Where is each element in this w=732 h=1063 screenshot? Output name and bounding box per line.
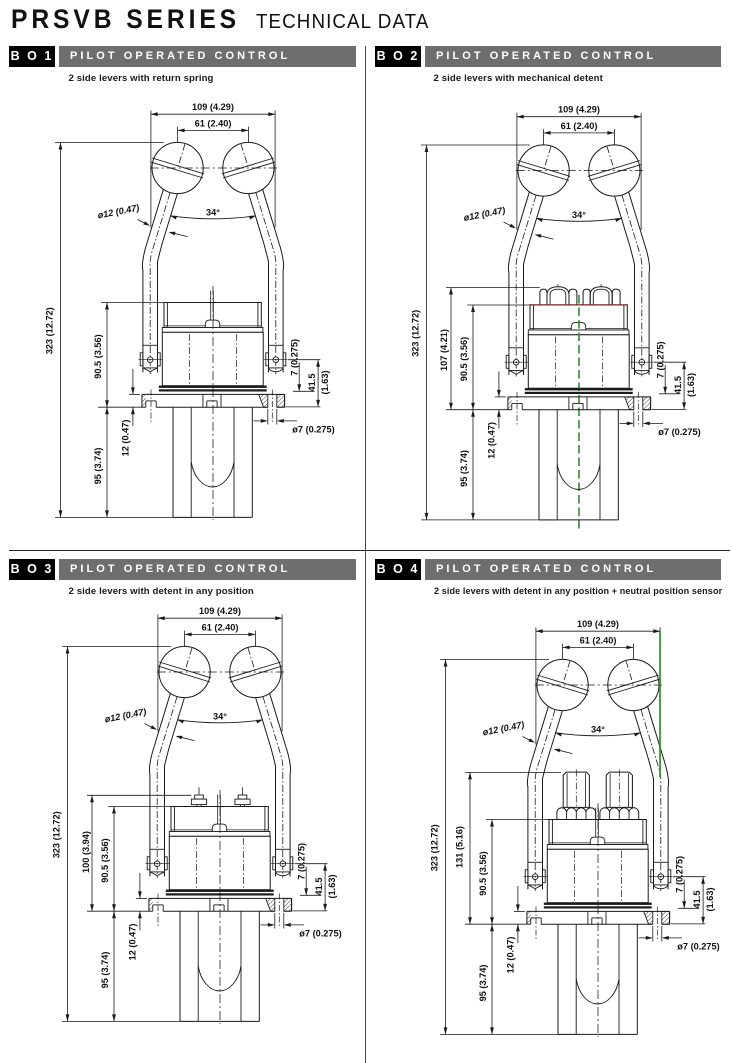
svg-text:12 (0.47): 12 (0.47) [120,420,130,457]
svg-text:95 (3.74): 95 (3.74) [93,448,103,485]
svg-text:61 (2.40): 61 (2.40) [195,119,232,129]
svg-text:323 (12.72): 323 (12.72) [52,811,62,858]
svg-text:109 (4.29): 109 (4.29) [199,606,241,616]
svg-text:41.5: 41.5 [673,376,683,394]
svg-text:95 (3.74): 95 (3.74) [459,450,469,487]
svg-text:34°: 34° [591,725,605,735]
svg-text:12 (0.47): 12 (0.47) [486,422,496,459]
svg-text:(1.63): (1.63) [686,373,696,397]
svg-text:ø12 (0.47): ø12 (0.47) [104,707,148,725]
svg-text:107 (4.21): 107 (4.21) [439,329,449,371]
svg-text:7 (0.275): 7 (0.275) [675,856,685,893]
svg-text:ø12 (0.47): ø12 (0.47) [97,203,141,221]
svg-text:ø12 (0.47): ø12 (0.47) [463,205,507,223]
svg-text:41.5: 41.5 [307,374,317,392]
svg-text:323 (12.72): 323 (12.72) [430,824,440,871]
svg-text:12 (0.47): 12 (0.47) [127,924,137,961]
svg-text:(1.63): (1.63) [327,874,337,898]
svg-text:7 (0.275): 7 (0.275) [290,339,300,376]
svg-text:90.5 (3.56): 90.5 (3.56) [459,337,469,381]
svg-text:34°: 34° [572,210,586,220]
svg-text:34°: 34° [213,712,227,722]
svg-text:7 (0.275): 7 (0.275) [297,843,307,880]
svg-text:90.5 (3.56): 90.5 (3.56) [93,334,103,378]
svg-text:(1.63): (1.63) [705,887,715,911]
svg-text:100 (3.94): 100 (3.94) [81,831,91,873]
svg-text:ø7 (0.275): ø7 (0.275) [292,425,334,435]
svg-text:41.5: 41.5 [314,878,324,896]
svg-text:323 (12.72): 323 (12.72) [411,310,421,357]
svg-text:61 (2.40): 61 (2.40) [580,636,617,646]
svg-text:95 (3.74): 95 (3.74) [478,965,488,1002]
svg-text:41.5: 41.5 [692,891,702,909]
svg-text:7 (0.275): 7 (0.275) [656,341,666,378]
svg-text:95 (3.74): 95 (3.74) [100,952,110,989]
svg-text:90.5 (3.56): 90.5 (3.56) [478,851,488,895]
svg-text:(1.63): (1.63) [320,370,330,394]
svg-text:61 (2.40): 61 (2.40) [202,623,239,633]
svg-text:131 (5.16): 131 (5.16) [455,826,465,868]
svg-text:90.5 (3.56): 90.5 (3.56) [100,838,110,882]
svg-text:ø7 (0.275): ø7 (0.275) [299,929,341,939]
svg-text:323 (12.72): 323 (12.72) [45,307,55,354]
svg-text:ø7 (0.275): ø7 (0.275) [658,427,700,437]
svg-text:ø12 (0.47): ø12 (0.47) [482,720,526,738]
svg-text:61 (2.40): 61 (2.40) [561,121,598,131]
svg-text:109 (4.29): 109 (4.29) [192,102,234,112]
svg-text:12 (0.47): 12 (0.47) [505,937,515,974]
svg-text:ø7 (0.275): ø7 (0.275) [677,942,719,952]
svg-text:109 (4.29): 109 (4.29) [558,105,600,115]
svg-text:34°: 34° [206,208,220,218]
svg-text:109 (4.29): 109 (4.29) [577,619,619,629]
